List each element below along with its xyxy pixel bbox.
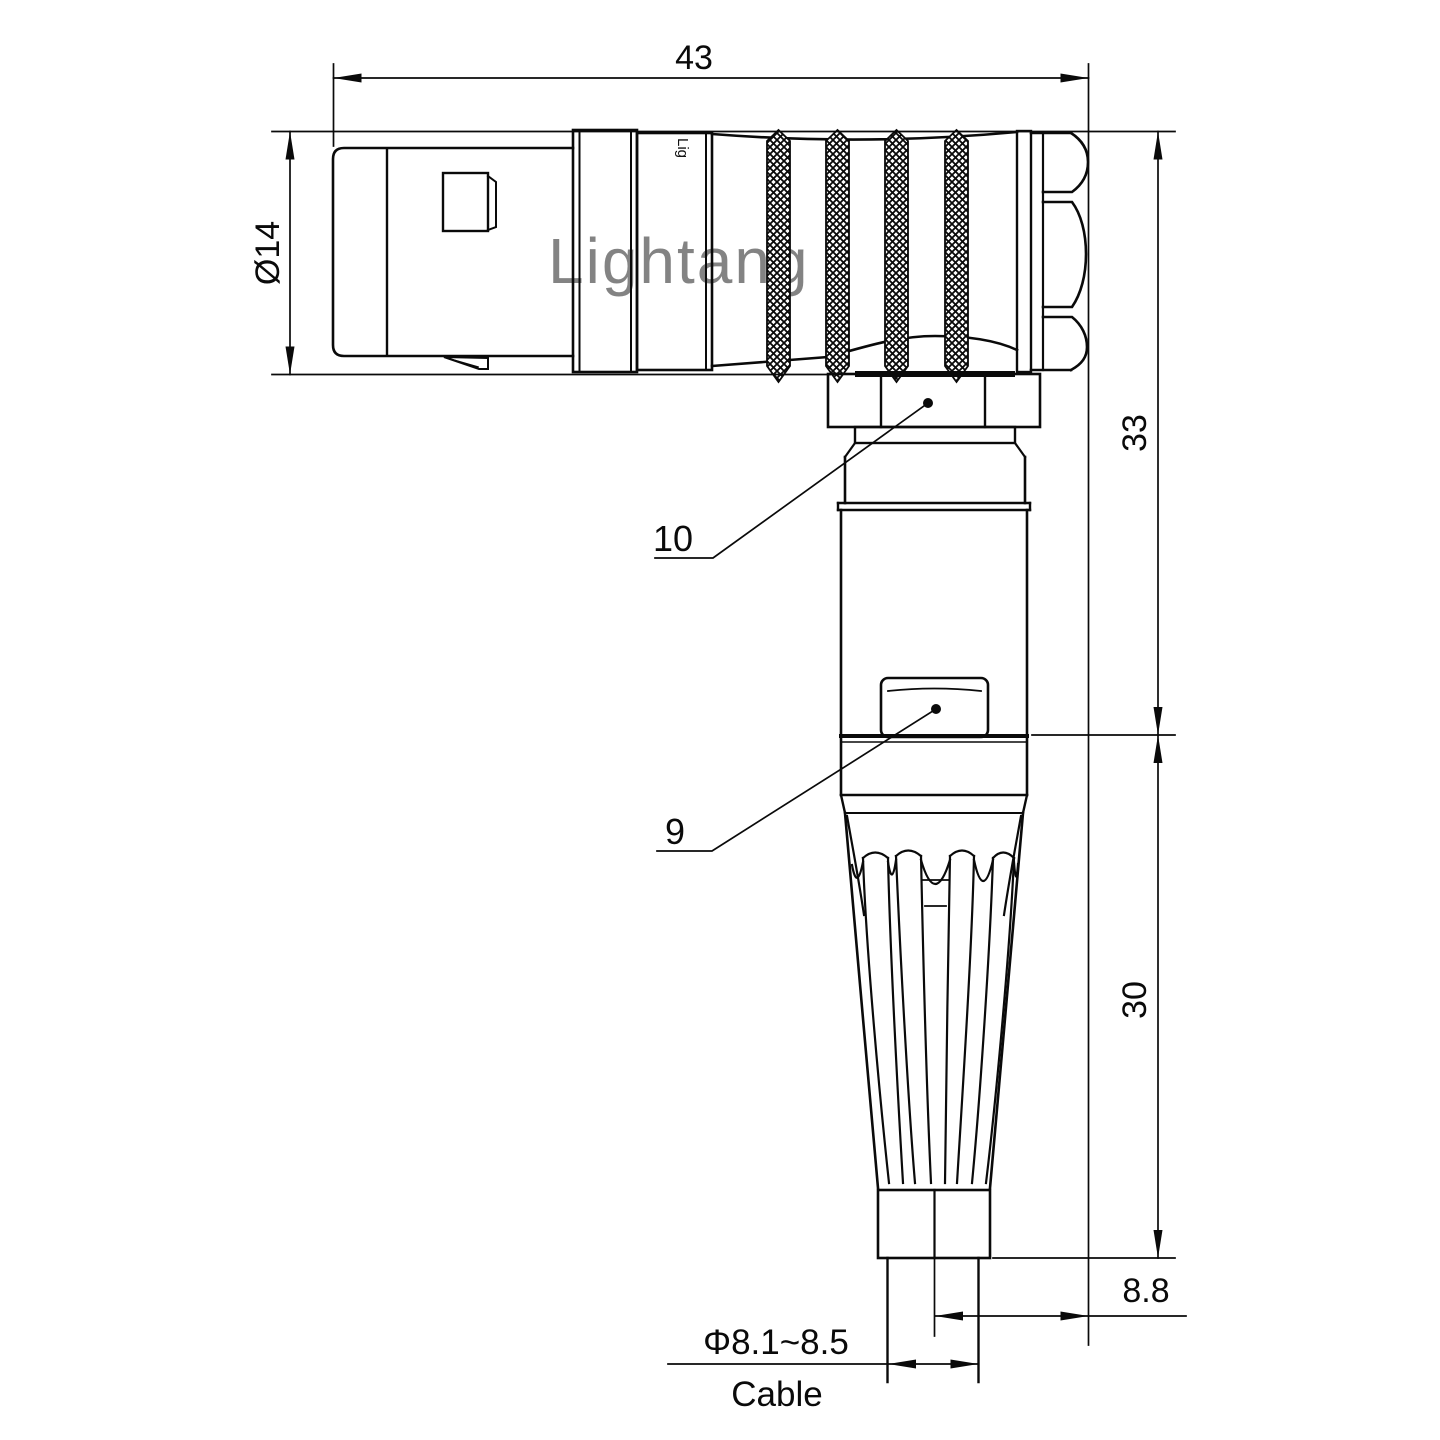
strain-relief-boot — [845, 813, 1023, 1188]
dim-33-label: 33 — [1116, 414, 1154, 452]
nut-lobe-middle — [1043, 202, 1086, 307]
front-release-sleeve — [333, 148, 573, 369]
knurl-band — [945, 130, 968, 382]
coupling-hex-nut — [828, 371, 1040, 427]
dim-88-label: 8.8 — [1122, 1272, 1169, 1310]
cable-label: Cable — [731, 1375, 822, 1414]
dim-43-label: 43 — [675, 39, 713, 77]
nut-lobe-top — [1043, 133, 1088, 192]
knurl-band — [767, 130, 790, 382]
boot-slot — [1014, 862, 1018, 877]
main-body-cylinder — [841, 510, 1027, 813]
barrel-top-edge — [712, 132, 1017, 140]
barrel-bottom-edge — [712, 336, 1017, 366]
body-print-text: Lig — [674, 138, 691, 158]
elbow-back-nut — [1031, 133, 1088, 370]
latch-window — [443, 173, 488, 231]
nut-lobe-bottom — [1043, 317, 1087, 370]
upper-body-cylinder — [838, 457, 1030, 510]
part-9-label: 9 — [665, 811, 685, 852]
latch-window-bevel — [488, 176, 496, 230]
boot-finger-top — [950, 851, 974, 857]
cable-diameter-label: Φ8.1~8.5 — [703, 1323, 849, 1362]
knurl-band — [826, 130, 849, 382]
boot-slot — [974, 860, 993, 881]
rear-face-ring — [1017, 131, 1031, 372]
dim-30-label: 30 — [1116, 981, 1154, 1019]
boot-end-cap — [878, 1190, 990, 1258]
neck-washer — [845, 427, 1025, 457]
boot-finger-top — [863, 853, 888, 859]
boot-slot — [888, 860, 896, 875]
leader-9 — [657, 704, 941, 851]
boot-finger-top — [896, 851, 921, 857]
boot-finger-top — [993, 853, 1014, 859]
connector-drawing-svg: Lightang — [0, 0, 1440, 1440]
drawing-canvas: Lightang — [0, 0, 1440, 1440]
dim-14-label: Ø14 — [249, 221, 287, 285]
part-10-label: 10 — [653, 518, 693, 559]
knurl-band — [885, 130, 908, 382]
leader-10 — [655, 398, 933, 558]
